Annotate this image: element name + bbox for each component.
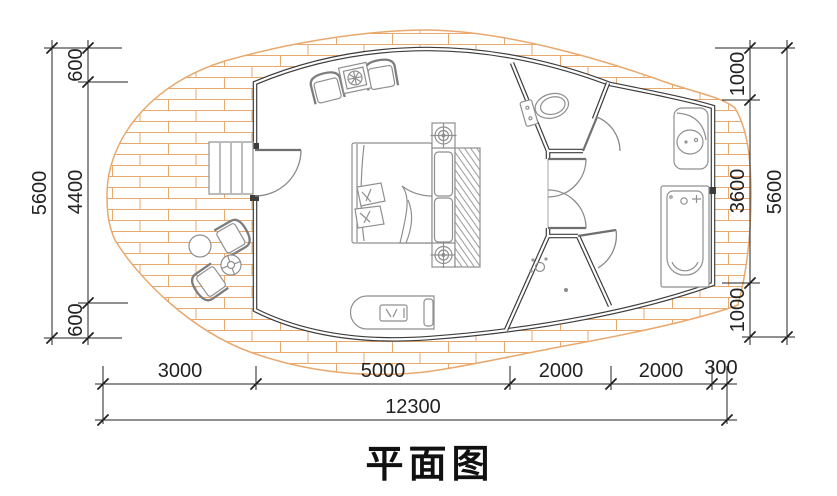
bedside-cabinet [431, 123, 457, 269]
dim-label-left-bottom: 600 [65, 303, 87, 336]
bathtub [661, 186, 709, 287]
drawing-title: 平面图 [365, 444, 494, 486]
side-table [339, 62, 372, 93]
wardrobe [455, 148, 480, 267]
dim-label-bottom-4: 2000 [639, 360, 684, 382]
dim-label-bottom-overall: 12300 [385, 396, 441, 418]
entry-steps [209, 142, 253, 194]
double-bed [352, 143, 432, 243]
floor-plan-page: 5600 600 4400 600 1000 3600 1000 5600 30… [0, 0, 837, 496]
dim-label-right-bottom: 1000 [727, 288, 749, 333]
bench-console [351, 296, 435, 329]
floor-plan-drawing: 5600 600 4400 600 1000 3600 1000 5600 30… [0, 0, 837, 496]
dim-label-bottom-1: 3000 [158, 360, 203, 382]
outdoor-table [189, 235, 211, 257]
dim-label-right-top: 1000 [727, 52, 749, 97]
dim-label-left-overall: 5600 [29, 171, 51, 216]
dim-label-bottom-5: 300 [704, 357, 737, 379]
dim-label-right-overall: 5600 [764, 170, 786, 215]
dim-label-left-mid: 4400 [65, 170, 87, 215]
dim-label-left-top: 600 [65, 48, 87, 81]
parasol-table [221, 255, 241, 275]
washbasin [674, 108, 708, 169]
dim-label-bottom-2: 5000 [361, 360, 406, 382]
dimension-right: 1000 3600 1000 5600 [715, 40, 795, 345]
dim-label-right-mid: 3600 [727, 169, 749, 214]
floor-drain-icon [564, 288, 568, 292]
dim-label-bottom-3: 2000 [539, 360, 584, 382]
